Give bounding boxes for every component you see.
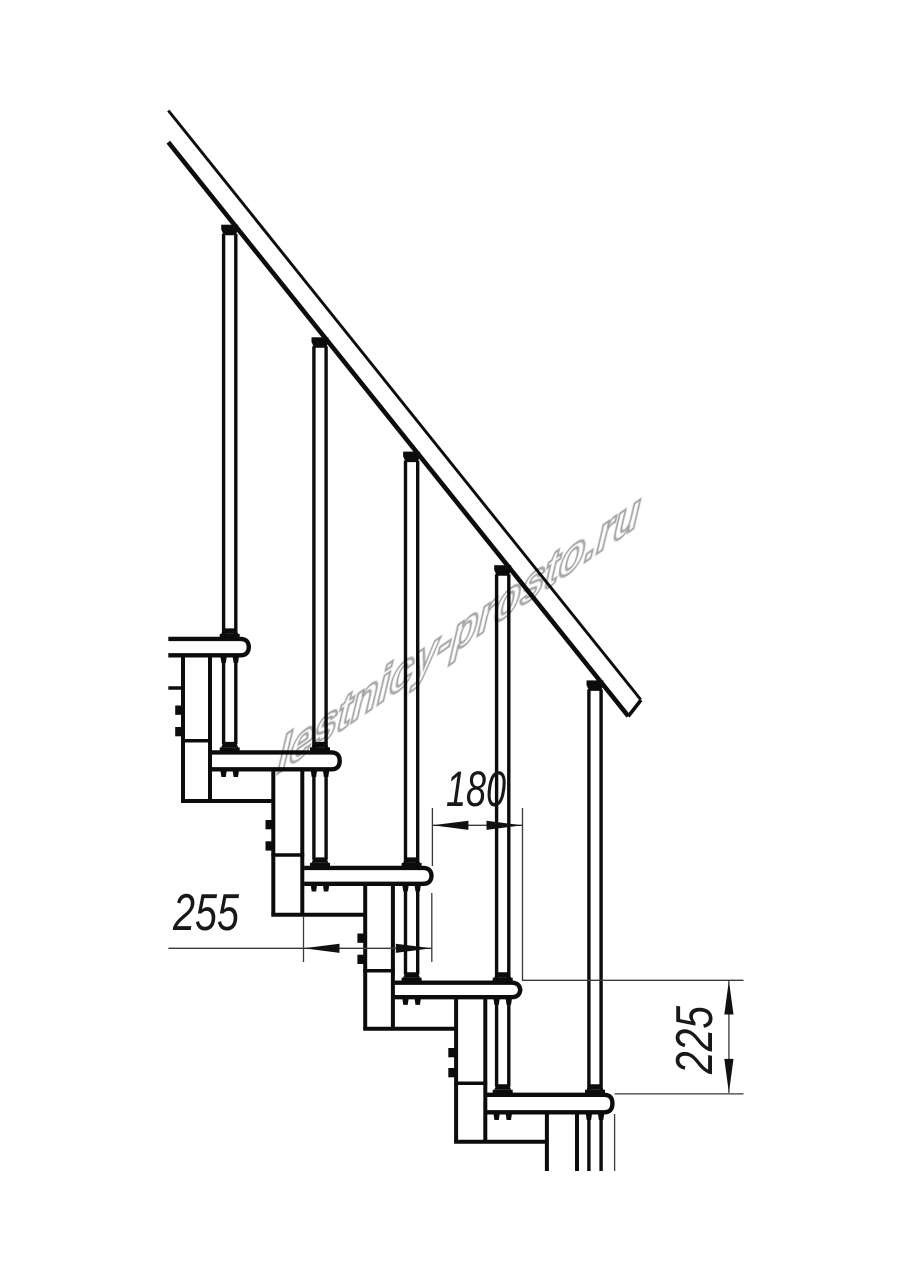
svg-text:255: 255: [172, 884, 240, 942]
svg-text:180: 180: [446, 761, 506, 817]
svg-text:225: 225: [666, 1005, 724, 1075]
